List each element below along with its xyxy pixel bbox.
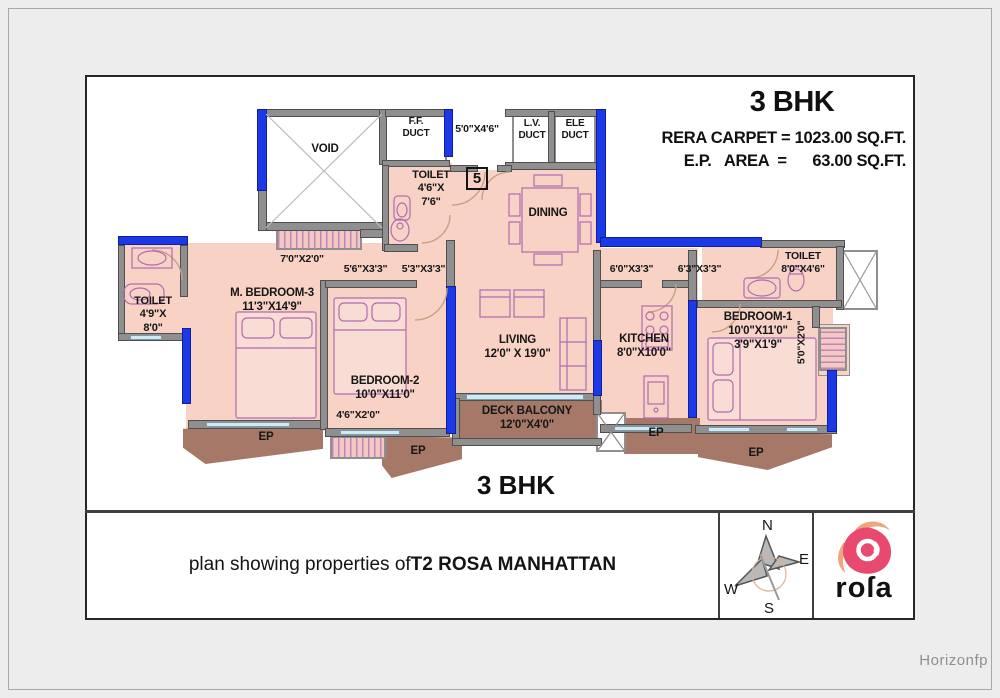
- wall-segment-blue: [182, 328, 191, 404]
- compass-w: W: [724, 581, 739, 598]
- toilet-left-name: TOILET: [134, 295, 172, 307]
- deck-balcony-dim: 12'0"X4'0": [500, 419, 554, 431]
- bedroom2-dim: 10'0"X11'0": [355, 389, 415, 401]
- compass-e: E: [799, 551, 809, 568]
- ep-area-line: E.P. AREA = 63.00 SQ.FT.: [636, 152, 906, 171]
- bedroom1-name: BEDROOM-1: [724, 311, 792, 323]
- room-label-ff-duct: F.F. DUCT: [387, 116, 445, 140]
- rera-carpet-line: RERA CARPET = 1023.00 SQ.FT.: [636, 129, 906, 148]
- deck-balcony-name: DECK BALCONY: [482, 405, 572, 417]
- compass-cell-divider: [718, 512, 720, 618]
- ff-duct-line2: DUCT: [403, 128, 430, 139]
- compass-icon: N E W S: [722, 514, 814, 614]
- wall-segment: [593, 395, 601, 415]
- ep-label: EP: [736, 446, 776, 460]
- wall-segment-blue: [600, 237, 762, 247]
- wall-segment-blue: [257, 109, 267, 191]
- wall-segment: [505, 162, 601, 170]
- wall-segment: [452, 438, 602, 446]
- dim-label-ledge-right: 5'0"X2'0": [796, 312, 809, 372]
- living-name: LIVING: [499, 334, 536, 346]
- kitchen-dim: 8'0"X10'0": [617, 347, 671, 359]
- dim-label-ledge-bottom: 4'6"X2'0": [328, 409, 388, 422]
- window-segment: [206, 422, 290, 427]
- ledge-right-shaft: [842, 250, 878, 310]
- wall-segment: [497, 165, 512, 172]
- wall-segment: [697, 300, 842, 308]
- room-label-lv-duct: L.V. DUCT: [511, 118, 553, 142]
- void-room: [263, 111, 385, 231]
- wall-segment-blue: [827, 370, 837, 432]
- toilet-top-dim1: 4'6"X: [418, 182, 444, 194]
- bedroom1-dim2: 3'9"X1'9": [734, 339, 782, 351]
- wall-segment: [760, 240, 845, 248]
- ep-label: EP: [398, 444, 438, 458]
- toilet-left-dim2: 8'0": [143, 322, 162, 334]
- lv-duct-line2: DUCT: [519, 130, 546, 141]
- dim-label-pass1: 5'6"X3'3": [338, 263, 393, 276]
- m-bedroom3-dim: 11'3"X14'9": [242, 301, 302, 313]
- toilet-left-dim1: 4'9"X: [140, 308, 166, 320]
- compass-s: S: [764, 600, 774, 617]
- caption-regular: plan showing properties of: [189, 554, 411, 576]
- dim-label-pass4: 6'3"X3'3": [672, 263, 727, 276]
- room-label-toilet-right: TOILET 8'0"X4'6": [768, 250, 838, 276]
- room-label-deck-balcony: DECK BALCONY 12'0"X4'0": [460, 404, 594, 432]
- bedroom2-name: BEDROOM-2: [351, 375, 419, 387]
- compass-n: N: [762, 517, 773, 534]
- plan-bottom-label: 3 BHK: [446, 470, 586, 501]
- ele-duct-line1: ELE: [566, 118, 585, 129]
- dim-label-pass3: 6'0"X3'3": [604, 263, 659, 276]
- room-label-void: VOID: [270, 142, 380, 156]
- room-label-toilet-left: TOILET 4'9"X 8'0": [121, 295, 185, 335]
- wall-segment-blue: [118, 236, 188, 245]
- window-segment: [130, 335, 162, 340]
- living-dim: 12'0" X 19'0": [484, 348, 550, 360]
- toilet-top-dim2: 7'6": [421, 196, 440, 208]
- wall-segment: [593, 250, 601, 342]
- toilet-right-name: TOILET: [785, 250, 821, 262]
- unit-number-box: 5: [466, 167, 488, 190]
- room-label-toilet-top: TOILET 4'6"X 7'6": [406, 169, 456, 209]
- wall-segment: [263, 109, 385, 117]
- caption-project-name: T2 ROSA MANHATTAN: [411, 554, 616, 576]
- rosa-logo-icon: [828, 514, 904, 574]
- wall-segment: [382, 160, 450, 167]
- toilet-top-name: TOILET: [412, 169, 450, 181]
- ep-label: EP: [636, 426, 676, 440]
- room-label-bedroom2: BEDROOM-2 10'0"X11'0": [330, 374, 440, 402]
- room-label-living: LIVING 12'0" X 19'0": [455, 333, 580, 361]
- toilet-right-dim: 8'0"X4'6": [781, 263, 825, 275]
- m-bedroom3-name: M. BEDROOM-3: [230, 287, 314, 299]
- dim-label-lobby: 5'0"X4'6": [448, 123, 506, 136]
- room-label-dining: DINING: [518, 206, 578, 220]
- dim-label-pass2: 5'3"X3'3": [396, 263, 451, 276]
- wall-segment: [180, 245, 188, 297]
- room-label-ele-duct: ELE DUCT: [553, 118, 597, 142]
- window-segment: [786, 427, 818, 432]
- room-label-m-bedroom3: M. BEDROOM-3 11'3"X14'9": [192, 286, 352, 314]
- floor-plan-page: 3 BHK RERA CARPET = 1023.00 SQ.FT. E.P. …: [0, 0, 1000, 698]
- wall-segment: [688, 250, 697, 302]
- room-label-kitchen: KITCHEN 8'0"X10'0": [598, 332, 690, 360]
- dim-label-ledge-top: 7'0"X2'0": [272, 253, 332, 266]
- unit-type-title: 3 BHK: [692, 86, 892, 119]
- window-segment: [708, 427, 750, 432]
- wall-segment: [379, 109, 387, 165]
- wall-segment: [384, 244, 418, 252]
- wall-segment: [662, 280, 690, 288]
- wall-segment-blue: [596, 109, 606, 243]
- ele-duct-line2: DUCT: [562, 130, 589, 141]
- bedroom1-dim1: 10'0"X11'0": [728, 325, 788, 337]
- rosa-logo-text: roſa: [814, 572, 914, 605]
- watermark: Horizonfp: [896, 652, 988, 669]
- window-segment: [466, 394, 584, 400]
- wall-segment: [258, 190, 267, 231]
- kitchen-name: KITCHEN: [619, 333, 669, 345]
- ff-duct-line1: F.F.: [409, 116, 424, 127]
- ledge-hatch-bottom: [330, 436, 386, 459]
- window-segment: [340, 430, 400, 435]
- lv-duct-line1: L.V.: [524, 118, 541, 129]
- wardrobe-hatch: [819, 327, 847, 371]
- ep-label: EP: [246, 430, 286, 444]
- plan-caption: plan showing properties of T2 ROSA MANHA…: [87, 512, 718, 618]
- wall-segment: [382, 165, 389, 251]
- ledge-hatch-top: [276, 229, 362, 250]
- wall-segment: [600, 280, 642, 288]
